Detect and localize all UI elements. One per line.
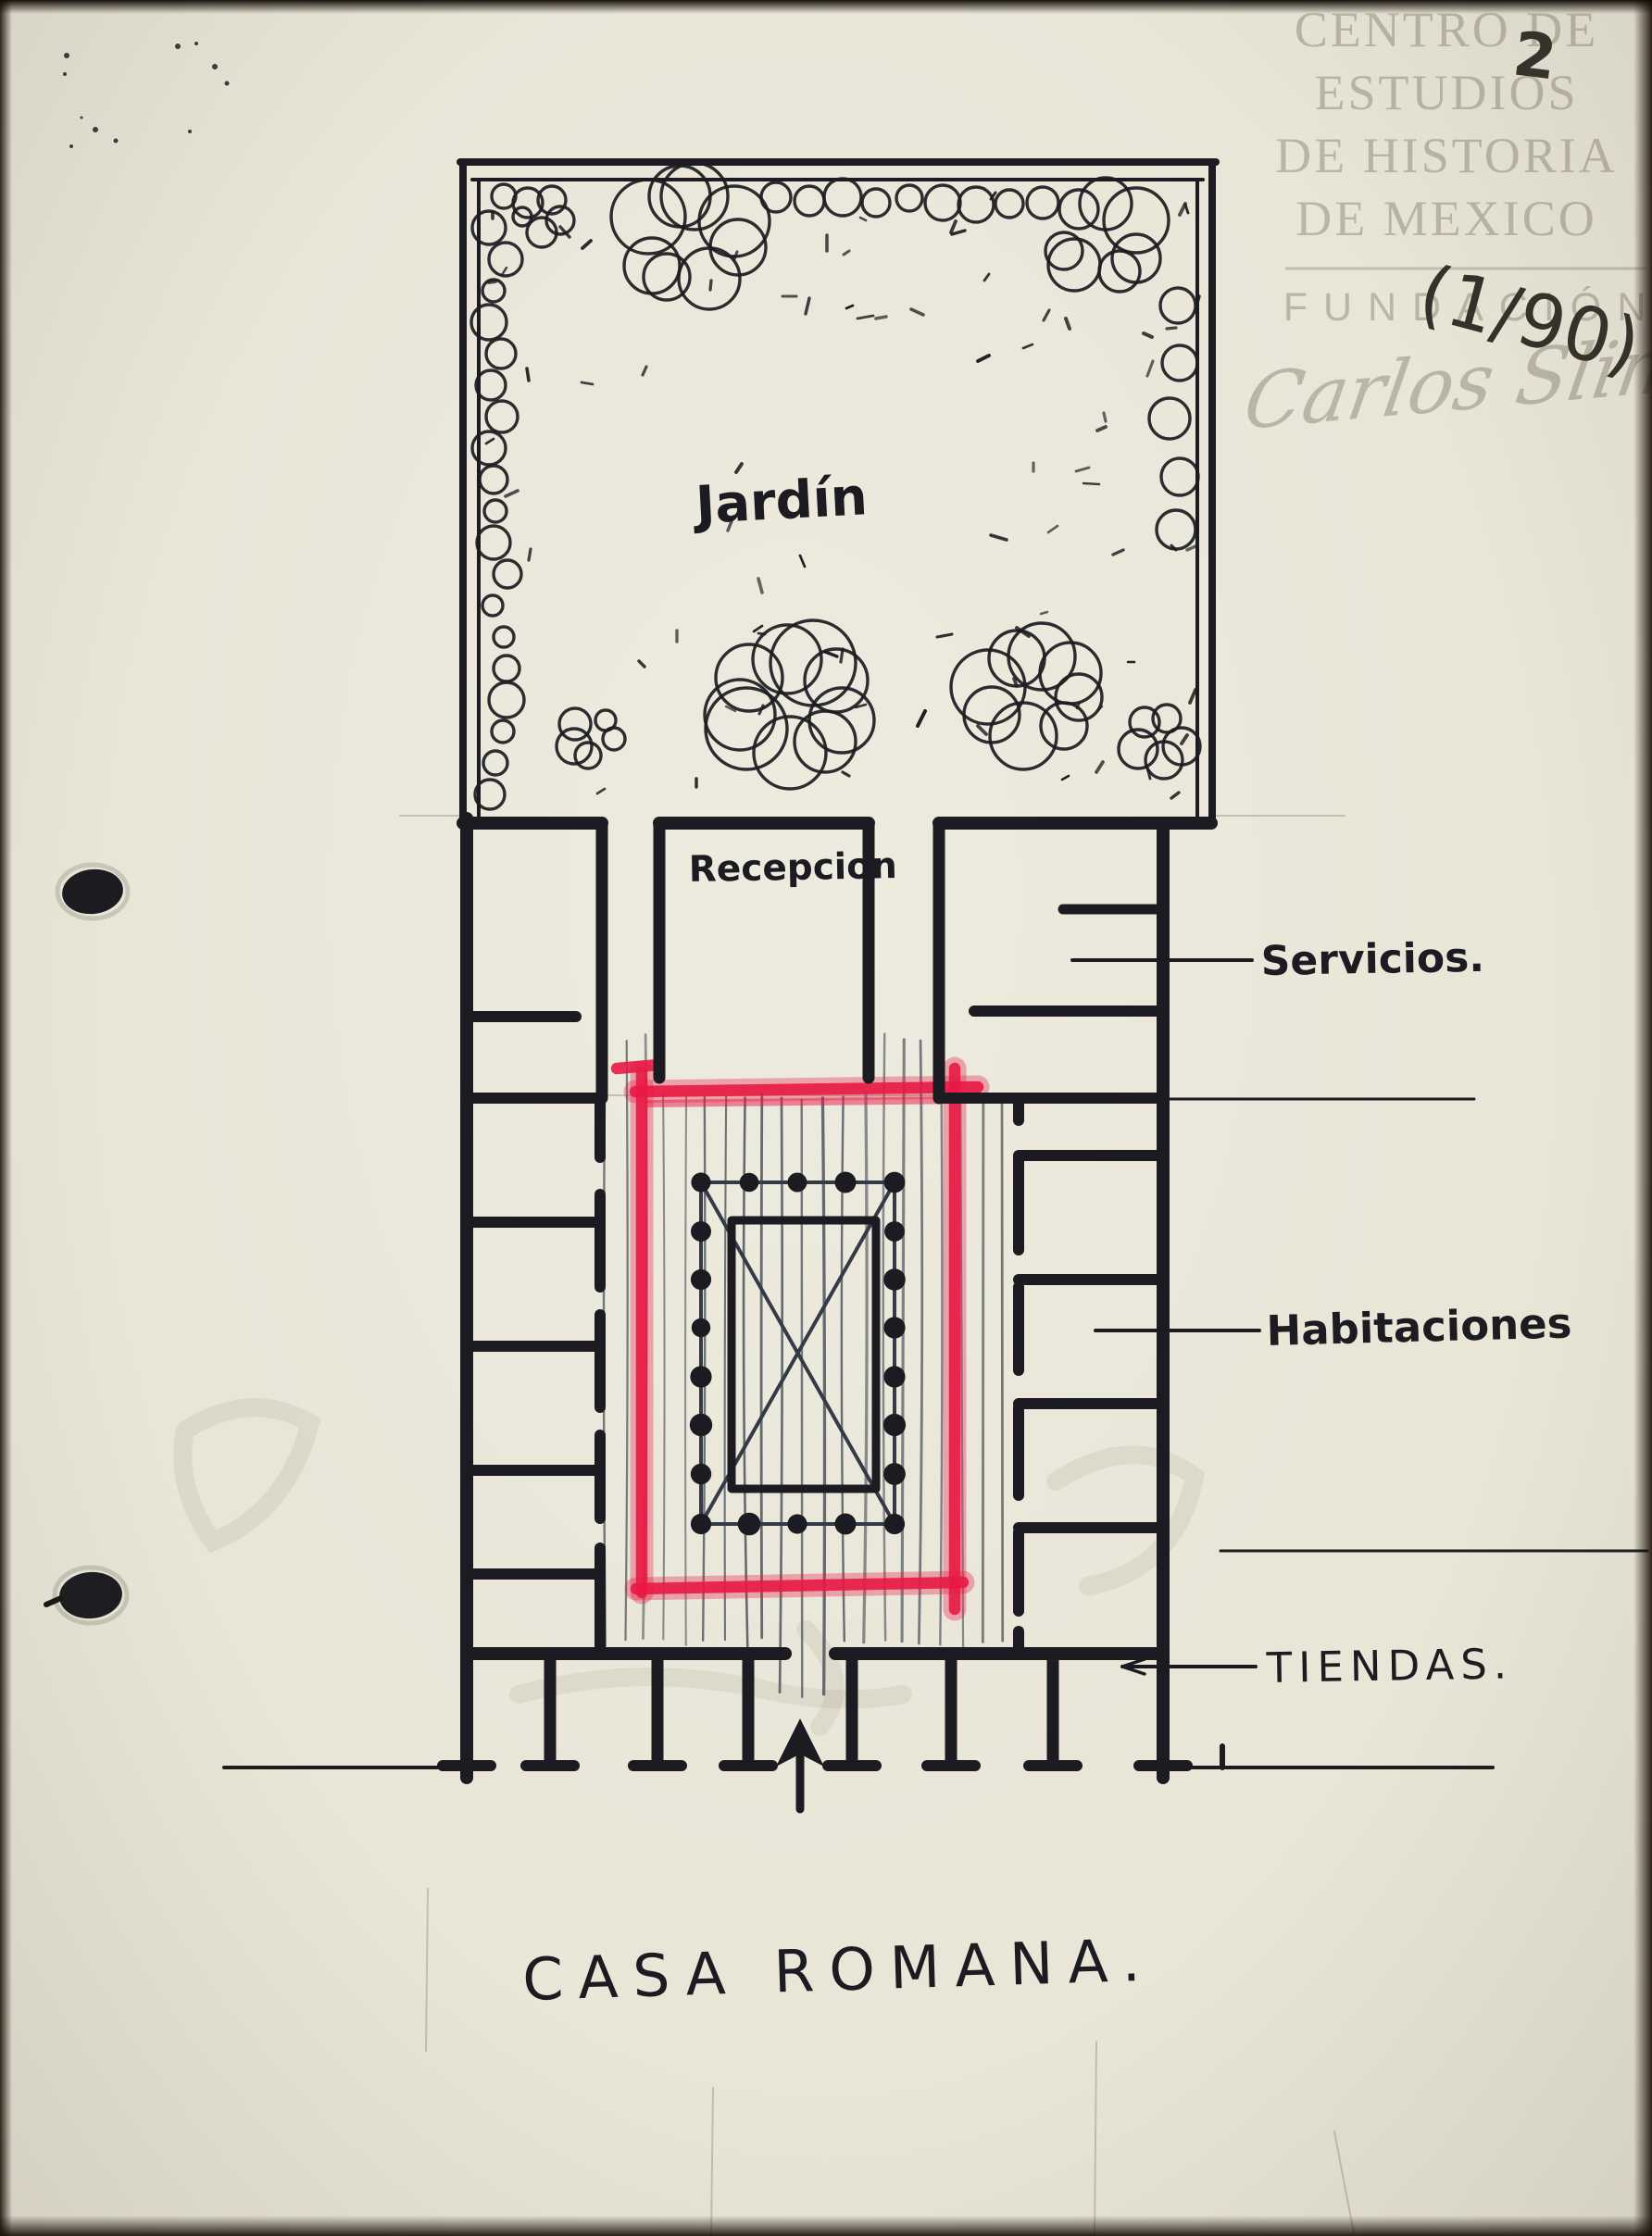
archive-watermark: CENTRO DE ESTUDIOS DE HISTORIA DE MEXICO… [1238,2,1652,447]
garden-label: Jardín [691,467,870,536]
impluvium-basin [732,1220,876,1489]
page-number: 2 [1509,18,1560,94]
watermark-line-4: DE MEXICO [1295,191,1596,246]
paper-specks [63,42,230,148]
hole-punches [46,865,128,1623]
building-walls [463,818,1211,1778]
rooms-label: Habitaciones [1266,1298,1572,1355]
watermark-line-3: DE HISTORIA [1275,128,1618,183]
casa-romana-floor-plan-drawing: Jardín Recepcion Servicios. Habitaciones… [0,0,1652,2236]
drawing-title: CASA ROMANA. [521,1927,1156,2014]
reception-label: Recepcion [688,845,897,891]
scanned-sketch-page: Jardín Recepcion Servicios. Habitaciones… [0,0,1652,2236]
services-label: Servicios. [1260,934,1484,985]
ink-bleedthrough-ghosts [182,1407,1195,1727]
plan-labels: Jardín Recepcion Servicios. Habitaciones… [521,467,1572,2014]
shops-label: TIENDAS. [1265,1639,1513,1693]
